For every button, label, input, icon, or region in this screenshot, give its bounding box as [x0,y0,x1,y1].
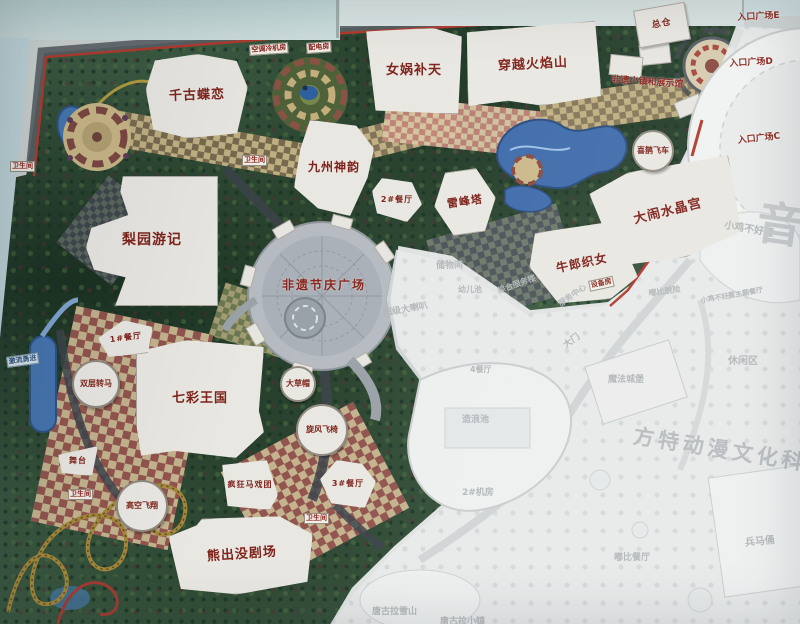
label-chicken-restaurant: 小鸡不好惹主题餐厅 [700,285,764,306]
label-kids-pool: 幼儿池 [458,284,482,295]
label-tanggula-snow-mountain: 唐古拉雪山 [372,604,417,617]
label-toilet-3: 卫生间 [68,489,93,500]
label-leisure-area: 休闲区 [728,352,758,367]
label-entrance-plaza-d: 入口广场D [729,54,773,69]
label-feiyi-festival-plaza: 非遗节庆广场 [282,276,366,293]
label-machine-room-2: 2#机房 [462,485,494,498]
label-watermark-music: 音乐 [753,186,800,266]
label-jiliu-yongjin: 激流勇进 [6,353,39,368]
label-magic-castle: 魔法城堡 [608,372,644,385]
label-equipment-room: 设备房 [588,276,615,292]
label-entrance-plaza-c: 入口广场C [737,129,781,146]
label-heritage-town-hall: 非遗小镇和展示馆 [611,72,684,90]
label-tanggula-town: 唐古拉小镇 [440,614,485,624]
label-storage: 储物间 [436,258,463,271]
label-entrance-plaza-e: 入口广场E [737,8,780,23]
labels-layer: 卫生间卫生间卫生间卫生间空调冷机房配电房设备房激流勇进非遗小镇和展示馆入口广场E… [0,0,800,624]
label-toilet-4: 卫生间 [304,513,329,524]
label-service-center: 服务中心 [556,282,589,309]
label-toilet-1: 卫生间 [10,161,35,172]
park-map-photo: 千古蝶恋女娲补天穿越火焰山总仓九州神韵雷峰塔大闹水晶宫牛郎织女梨园游记七彩王国熊… [0,0,800,624]
label-dubi-escape: 嘟比脱险 [648,284,681,299]
label-service-building: 综合服务楼 [496,272,537,296]
label-wave-pool: 造浪池 [462,412,489,425]
label-power-room: 配电房 [306,41,332,54]
label-super-horn-slide: 超级大喇叭 [382,298,429,319]
label-chiller-room: 空调冷机房 [249,42,289,56]
label-watermark-park-name: 方特动漫文化科技园 [631,420,800,485]
label-canteen-4: 4餐厅 [470,364,492,375]
label-gate: 大门 [560,330,582,351]
label-terracotta: 兵马俑 [744,531,775,549]
label-toilet-2: 卫生间 [242,155,267,166]
label-dubi-restaurant: 嘟比餐厅 [614,550,650,563]
